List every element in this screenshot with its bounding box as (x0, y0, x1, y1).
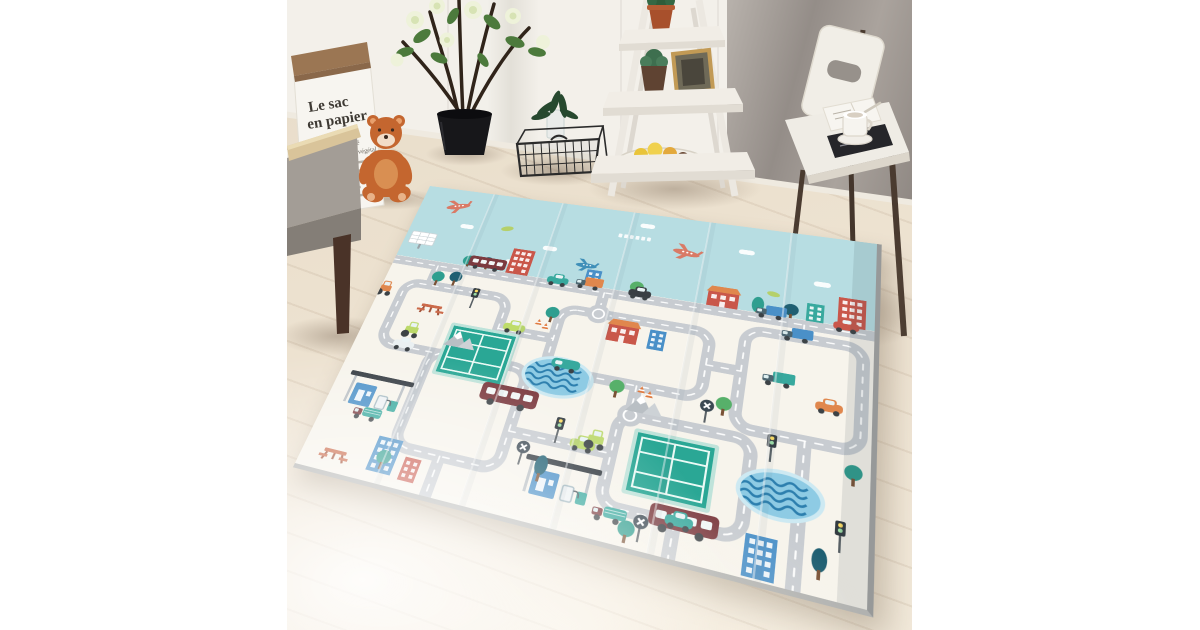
bench-leg (333, 234, 351, 334)
gold-frame (673, 50, 713, 94)
flower-planter (391, 0, 551, 155)
room-photo: Le sac en papier Ce sac est fabriqué à p… (287, 0, 912, 630)
bench-sofa (287, 124, 361, 334)
ladder-shelf (591, 0, 755, 196)
wire-basket (517, 89, 607, 176)
product-card: Le sac en papier Ce sac est fabriqué à p… (0, 0, 1200, 630)
